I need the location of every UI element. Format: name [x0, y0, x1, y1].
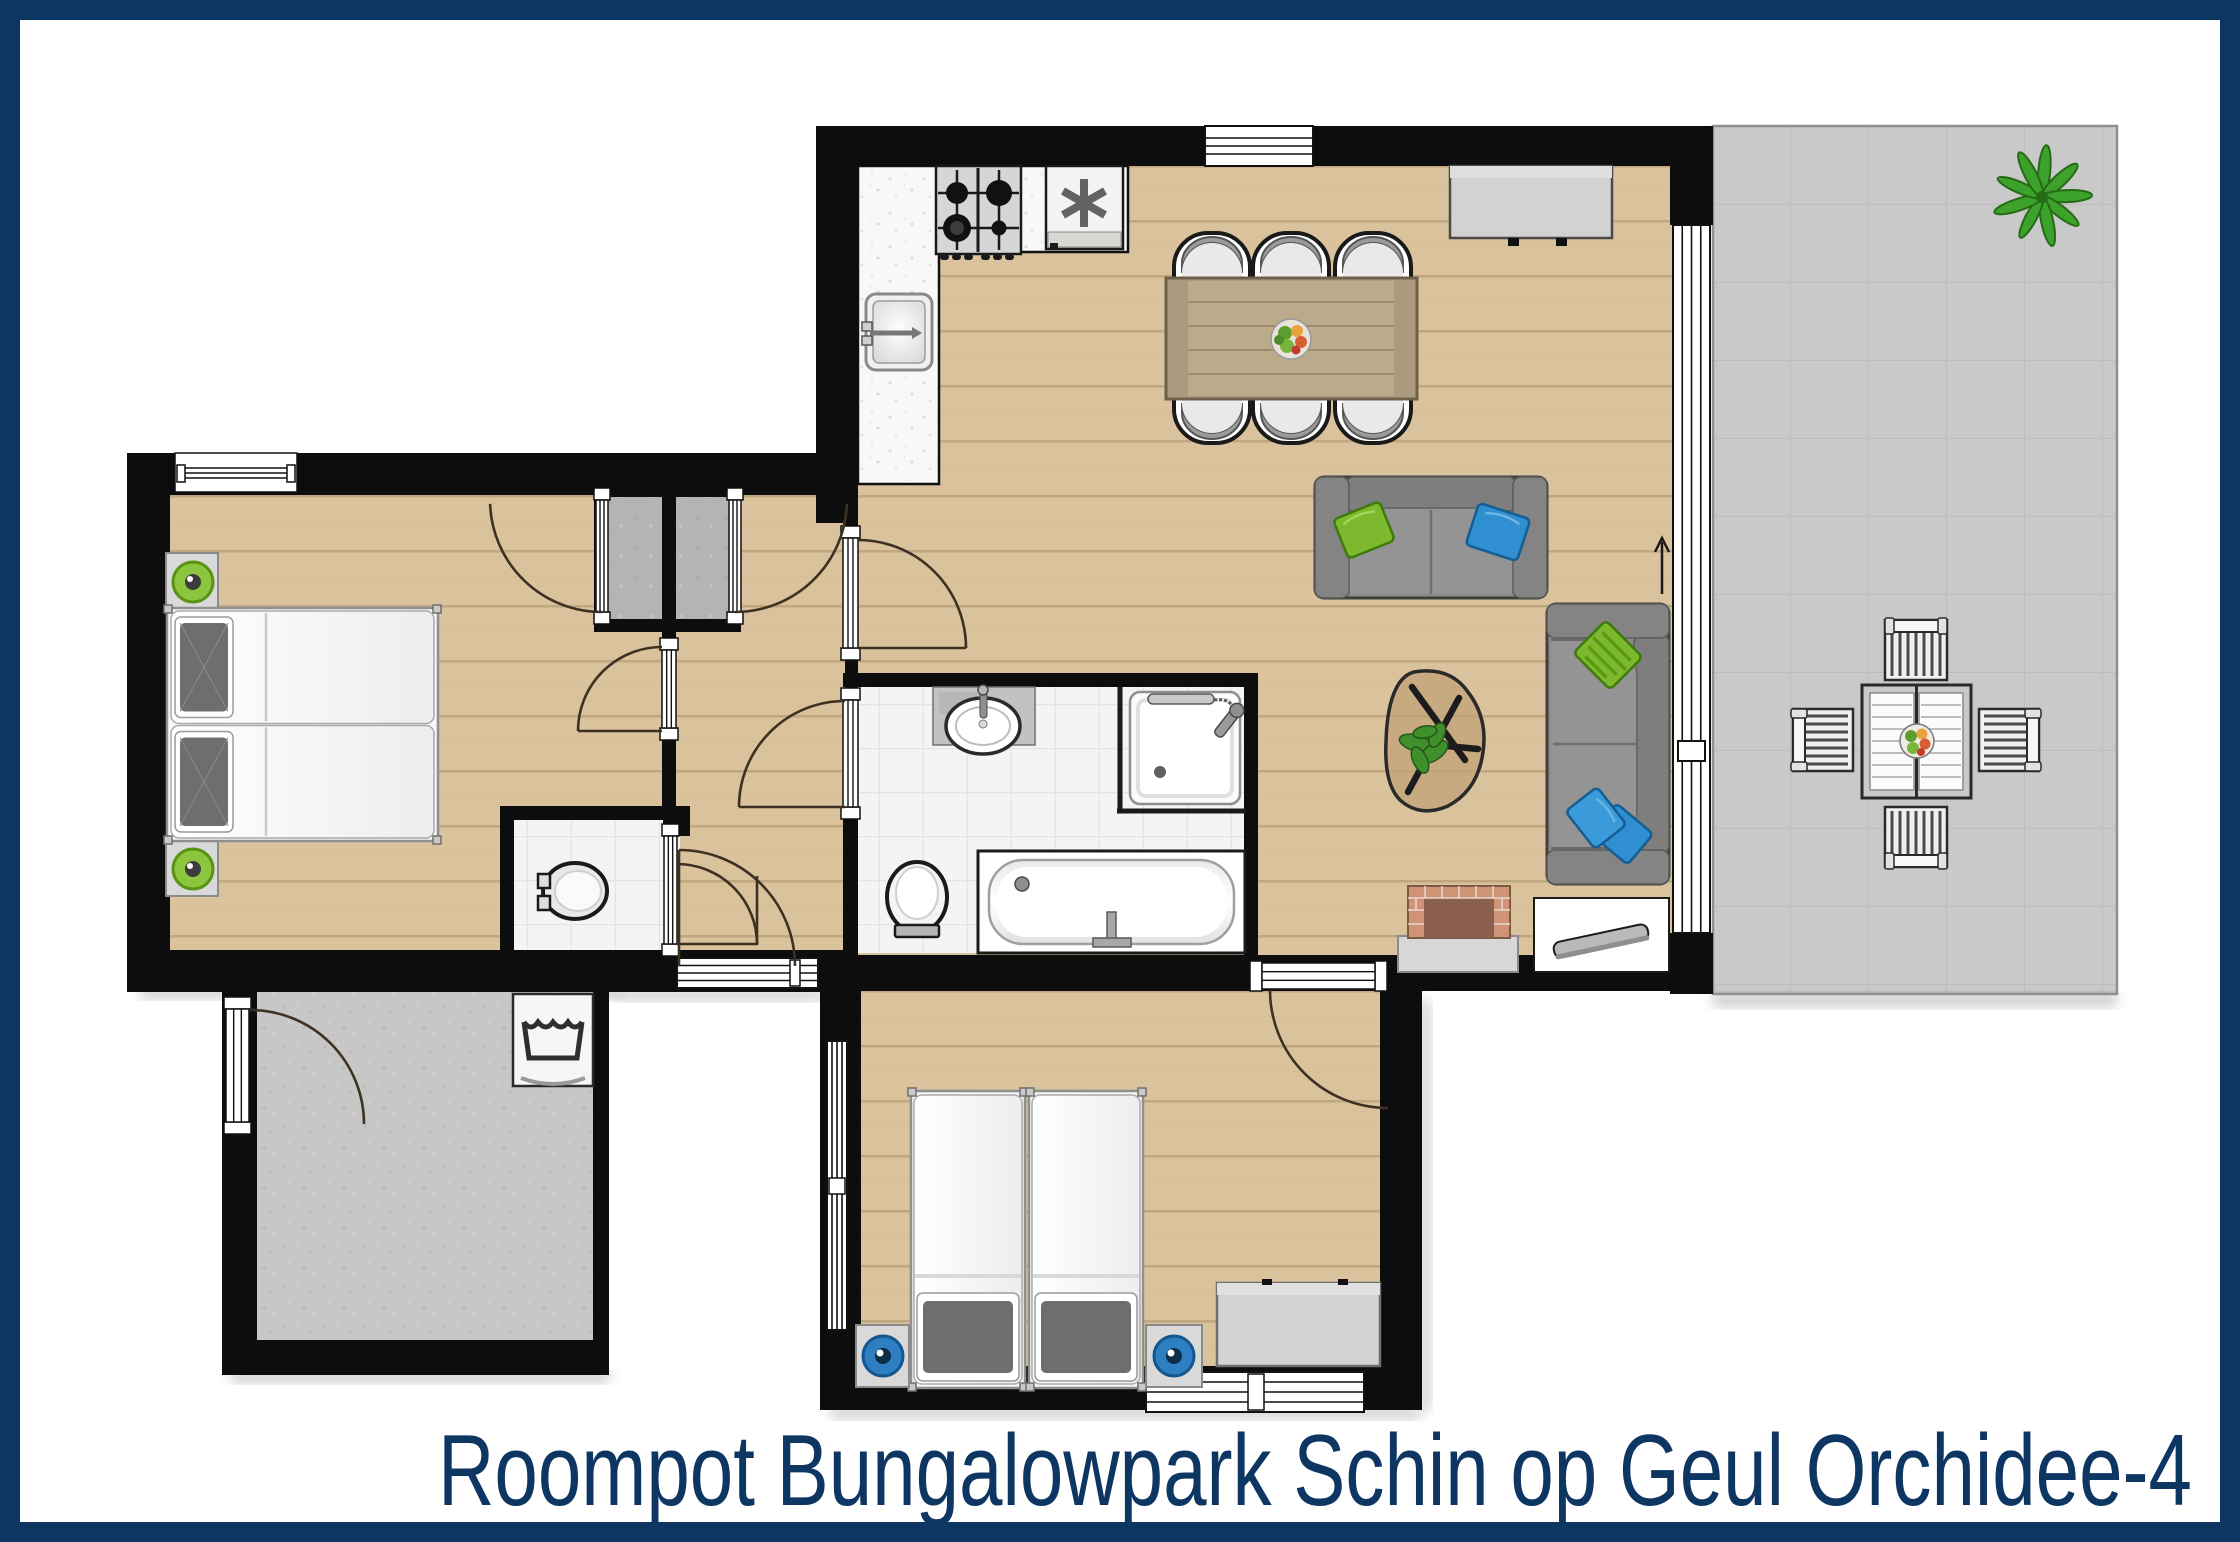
svg-text:Roompot Bungalowpark Schin op: Roompot Bungalowpark Schin op Geul Orchi…	[438, 1415, 2192, 1527]
